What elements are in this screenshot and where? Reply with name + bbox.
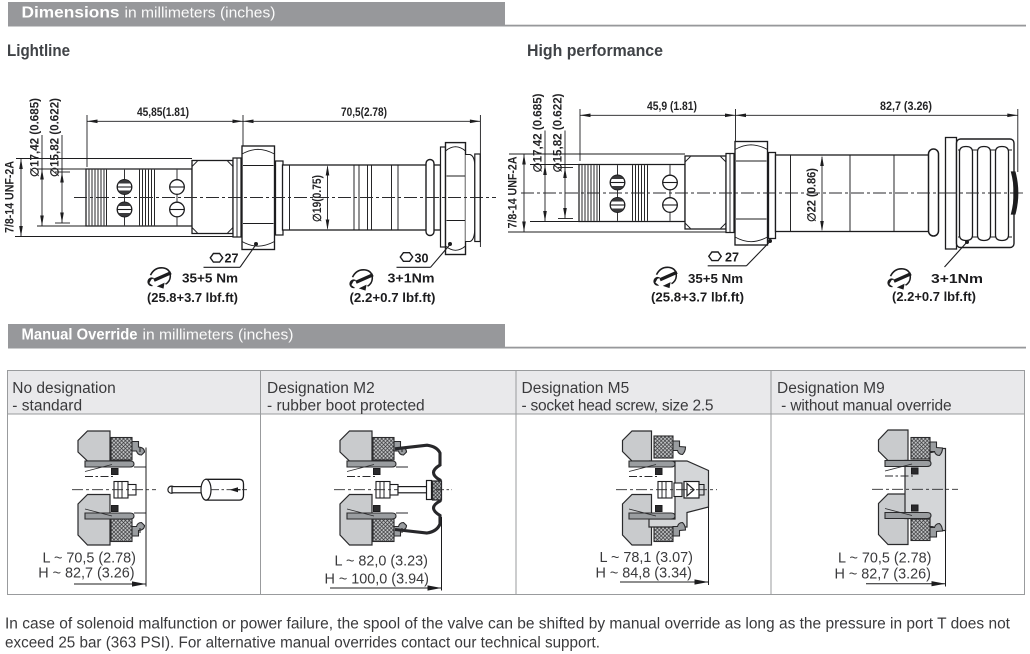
svg-text:L ~ 70,5 (2.78): L ~ 70,5 (2.78) (838, 551, 931, 567)
svg-text:∅15,82 (0.622): ∅15,82 (0.622) (49, 98, 62, 177)
svg-text:∅15,82 (0.622): ∅15,82 (0.622) (552, 93, 565, 172)
svg-text:7/8-14 UNF-2A: 7/8-14 UNF-2A (507, 156, 520, 229)
svg-text:H ~ 84,8 (3.34): H ~ 84,8 (3.34) (596, 566, 692, 582)
svg-text:Designation M2: Designation M2 (267, 380, 375, 397)
svg-text:35+5 Nm: 35+5 Nm (688, 271, 743, 286)
svg-text:- socket head screw, size 2.5: - socket head screw, size 2.5 (522, 398, 714, 415)
svg-text:(25.8+3.7 lbf.ft): (25.8+3.7 lbf.ft) (147, 290, 238, 305)
svg-text:45,85(1.81): 45,85(1.81) (137, 106, 189, 119)
svg-text:∅19(0.75): ∅19(0.75) (311, 175, 324, 222)
svg-text:- without manual override: - without manual override (777, 398, 951, 415)
svg-text:exceed 25 bar (363 PSI). For a: exceed 25 bar (363 PSI). For alternative… (5, 635, 600, 652)
svg-text:in millimeters (inches): in millimeters (inches) (125, 6, 276, 22)
svg-text:Dimensions: Dimensions (22, 5, 120, 22)
svg-text:H ~ 82,7 (3.26): H ~ 82,7 (3.26) (835, 567, 931, 583)
svg-text:L ~ 78,1 (3.07): L ~ 78,1 (3.07) (600, 550, 693, 566)
svg-text:- rubber boot protected: - rubber boot protected (267, 398, 425, 415)
svg-text:Designation M9: Designation M9 (777, 380, 885, 397)
svg-text:3+1Nm: 3+1Nm (388, 271, 435, 286)
svg-text:In case of solenoid malfunctio: In case of solenoid malfunction or power… (5, 616, 1011, 633)
svg-text:∅17,42 (0.685): ∅17,42 (0.685) (532, 93, 545, 172)
svg-text:3+1Nm: 3+1Nm (931, 271, 983, 286)
svg-text:L ~ 70,5 (2.78): L ~ 70,5 (2.78) (43, 551, 136, 567)
svg-text:27: 27 (225, 252, 239, 266)
svg-text:(2.2+0.7 lbf.ft): (2.2+0.7 lbf.ft) (892, 289, 976, 304)
svg-text:(2.2+0.7 lbf.ft): (2.2+0.7 lbf.ft) (350, 290, 436, 305)
svg-text:7/8-14 UNF-2A: 7/8-14 UNF-2A (4, 160, 17, 233)
svg-text:High performance: High performance (527, 41, 663, 60)
svg-text:H ~ 100,0 (3.94): H ~ 100,0 (3.94) (325, 571, 429, 587)
svg-text:∅17,42 (0.685): ∅17,42 (0.685) (29, 98, 42, 177)
svg-text:in millimeters (inches): in millimeters (inches) (143, 328, 294, 344)
svg-text:30: 30 (415, 252, 429, 266)
svg-text:27: 27 (725, 251, 739, 265)
svg-text:- standard: - standard (12, 398, 82, 415)
svg-text:70,5(2.78): 70,5(2.78) (341, 106, 387, 119)
svg-text:(25.8+3.7 lbf.ft): (25.8+3.7 lbf.ft) (651, 290, 744, 305)
svg-text:Lightline: Lightline (7, 41, 70, 60)
svg-text:L ~ 82,0 (3.23): L ~ 82,0 (3.23) (335, 554, 428, 570)
svg-text:H ~ 82,7 (3.26): H ~ 82,7 (3.26) (38, 566, 134, 582)
svg-text:82,7 (3.26): 82,7 (3.26) (880, 100, 932, 113)
svg-text:Manual Override: Manual Override (22, 327, 138, 344)
svg-text:45,9 (1.81): 45,9 (1.81) (647, 100, 697, 113)
svg-text:35+5 Nm: 35+5 Nm (182, 271, 238, 286)
svg-text:No designation: No designation (12, 380, 115, 397)
svg-text:∅22 (0.86): ∅22 (0.86) (806, 168, 819, 222)
svg-text:Designation M5: Designation M5 (522, 380, 630, 397)
